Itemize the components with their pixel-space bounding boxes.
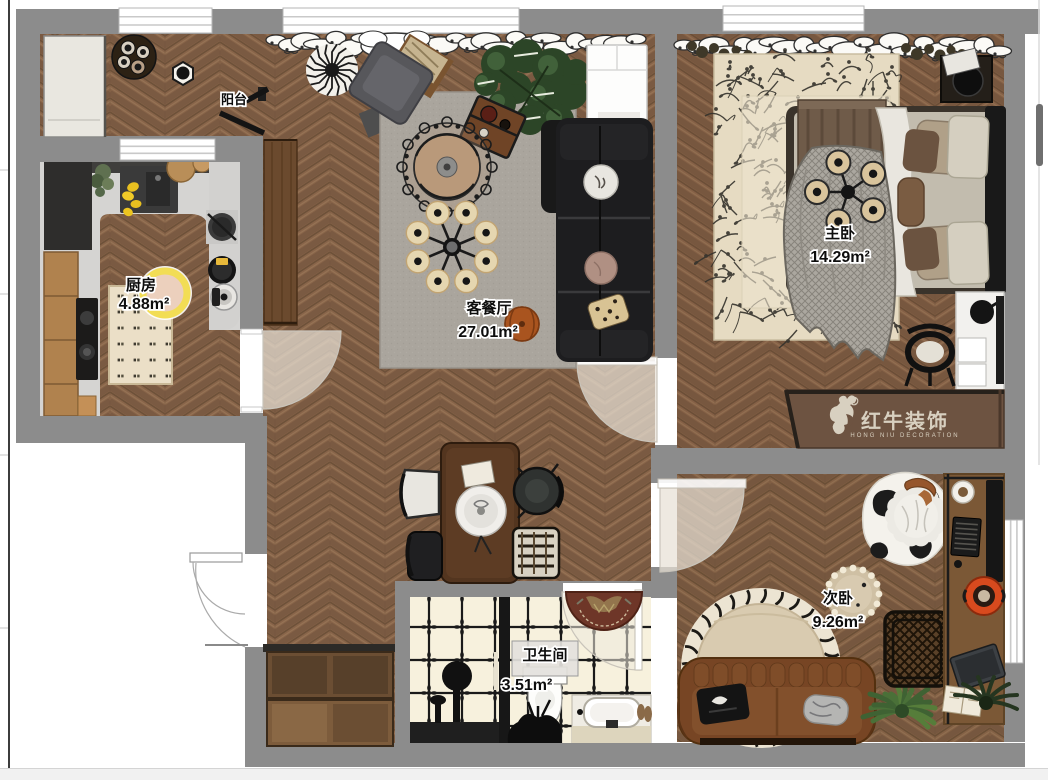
- svg-text:14.29m²: 14.29m²: [810, 249, 870, 266]
- svg-text:阳台: 阳台: [221, 92, 247, 107]
- svg-text:27.01m²: 27.01m²: [458, 324, 518, 341]
- svg-text:卫生间: 卫生间: [522, 646, 567, 664]
- svg-text:9.26m²: 9.26m²: [813, 614, 864, 631]
- svg-text:红牛装饰: 红牛装饰: [861, 409, 949, 433]
- svg-text:4.88m²: 4.88m²: [119, 296, 170, 313]
- svg-text:客餐厅: 客餐厅: [465, 299, 511, 317]
- svg-text:R: R: [852, 400, 856, 406]
- svg-text:3.51m²: 3.51m²: [502, 677, 553, 694]
- svg-text:次卧: 次卧: [823, 589, 853, 607]
- svg-text:厨房: 厨房: [126, 276, 156, 294]
- svg-text:HONG NIU DECORATION: HONG NIU DECORATION: [850, 433, 959, 439]
- svg-text:主卧: 主卧: [825, 224, 855, 242]
